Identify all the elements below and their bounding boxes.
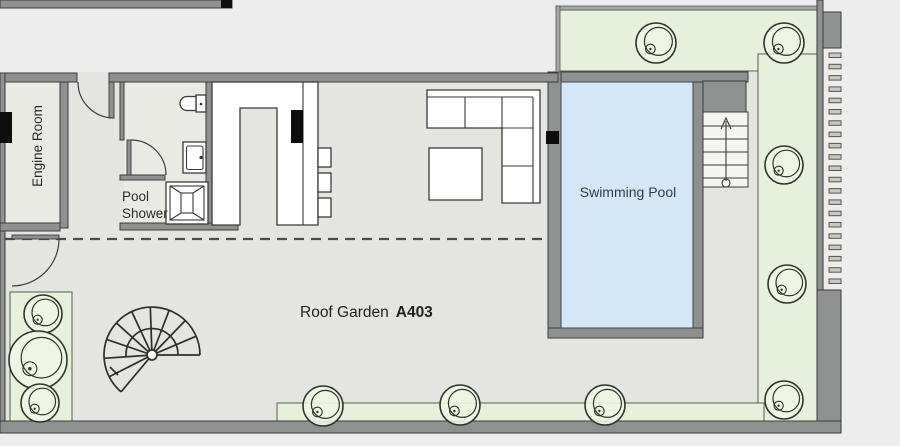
louver-slat: [829, 155, 841, 160]
plant-icon: [764, 23, 804, 63]
louver-slat: [829, 53, 841, 58]
shower-wall-inner: [120, 175, 165, 180]
plant-icon: [636, 23, 676, 63]
louver-slat: [829, 211, 841, 216]
bar-stool: [318, 198, 331, 217]
skylight-icon: [166, 182, 208, 224]
wall-bottom: [0, 421, 841, 433]
louver-slat: [829, 189, 841, 194]
louver-slat: [829, 143, 841, 148]
wall-right-block: [823, 12, 841, 48]
roof-garden-label: Roof GardenA403: [300, 304, 433, 321]
planter-bottom-strip: [277, 403, 764, 423]
pool-shower-label-line1: Pool: [122, 189, 149, 204]
louver-slat: [829, 245, 841, 250]
pool-wall-right: [693, 82, 703, 338]
wall-top-thin: [0, 0, 232, 8]
louver-slat: [829, 87, 841, 92]
louver-slat: [829, 256, 841, 261]
basin-icon: [183, 142, 206, 173]
louver-slat: [829, 110, 841, 115]
wall-jamb-pool: [546, 131, 559, 144]
plant-icon: [765, 381, 803, 419]
swimming-pool-label: Swimming Pool: [580, 184, 676, 200]
planter-right-strip: [758, 54, 817, 423]
plant-icon: [303, 386, 343, 426]
louver-slat: [829, 166, 841, 171]
parapet-top: [556, 6, 818, 10]
louver-screen: [829, 53, 841, 284]
bar-stool: [318, 173, 331, 192]
louver-slat: [829, 132, 841, 137]
door-leaf-garden: [12, 235, 59, 239]
wall-jamb-left: [0, 112, 12, 143]
louver-slat: [829, 279, 841, 284]
wall-jamb-top: [221, 0, 232, 8]
plant-icon: [9, 331, 67, 389]
louver-slat: [829, 98, 841, 103]
toilet-icon: [180, 95, 206, 112]
plant-icon: [765, 146, 803, 184]
pool-wall-bottom: [548, 328, 703, 338]
louver-slat: [829, 64, 841, 69]
plant-icon: [585, 385, 625, 425]
louver-slat: [829, 268, 841, 273]
wall-main-top-left: [0, 73, 77, 82]
louver-slat: [829, 200, 841, 205]
coffee-table-icon: [429, 148, 482, 200]
parapet-top-left: [556, 6, 560, 72]
plant-icon: [21, 384, 59, 422]
door-leaf-corridor: [109, 82, 114, 118]
roof-garden-label-text: Roof Garden: [300, 304, 389, 321]
plant-icon: [440, 385, 480, 425]
louver-slat: [829, 121, 841, 126]
pool-wall-left: [548, 72, 561, 338]
bar-stool: [318, 148, 331, 167]
roof-garden-unit-number: A403: [396, 304, 433, 321]
wall-main-top: [109, 73, 558, 82]
engine-room-wall-bottom: [0, 223, 60, 231]
louver-slat: [829, 223, 841, 228]
pool-stairs: [703, 112, 748, 187]
plant-icon: [768, 265, 806, 303]
louver-slat: [829, 234, 841, 239]
floor-plan-drawing: Engine Room Pool Shower Swimming Pool Ro…: [0, 0, 900, 446]
wall-right-thin: [817, 0, 823, 290]
cooktop-icon: [291, 110, 303, 143]
pool-shower-label-line2: Shower: [122, 206, 168, 221]
plant-icon: [24, 295, 62, 333]
floor-plan: Engine Room Pool Shower Swimming Pool Ro…: [0, 0, 900, 446]
pool-water: [561, 82, 693, 328]
door-leaf-shower: [127, 140, 131, 175]
engine-room-label: Engine Room: [30, 105, 45, 187]
wall-right-thick: [817, 290, 841, 433]
engine-room-wall-right: [60, 82, 68, 228]
louver-slat: [829, 76, 841, 81]
pool-deck-block: [703, 81, 746, 112]
shower-wall-left: [120, 82, 124, 140]
louver-slat: [829, 177, 841, 182]
